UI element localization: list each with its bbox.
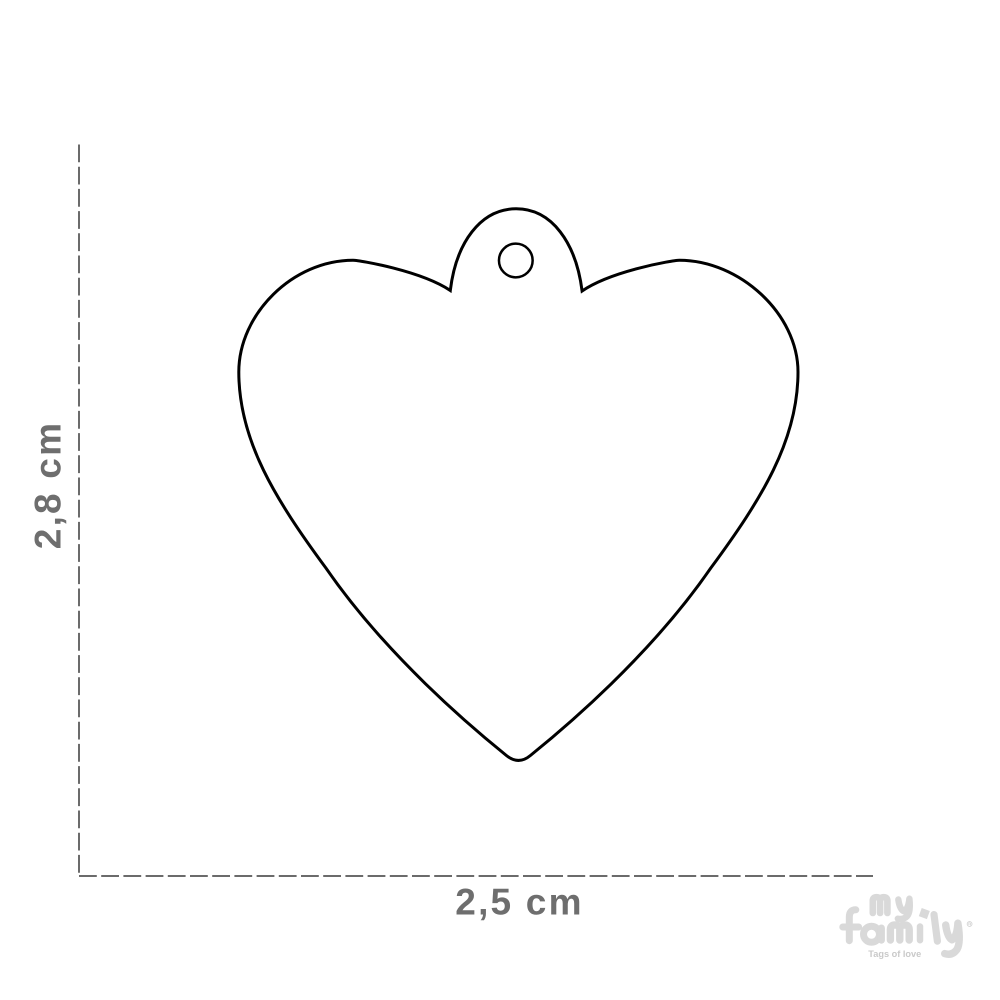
svg-text:Tags of love: Tags of love: [868, 949, 921, 959]
svg-text:2,8 cm: 2,8 cm: [28, 421, 69, 549]
svg-text:2,5 cm: 2,5 cm: [455, 882, 583, 923]
